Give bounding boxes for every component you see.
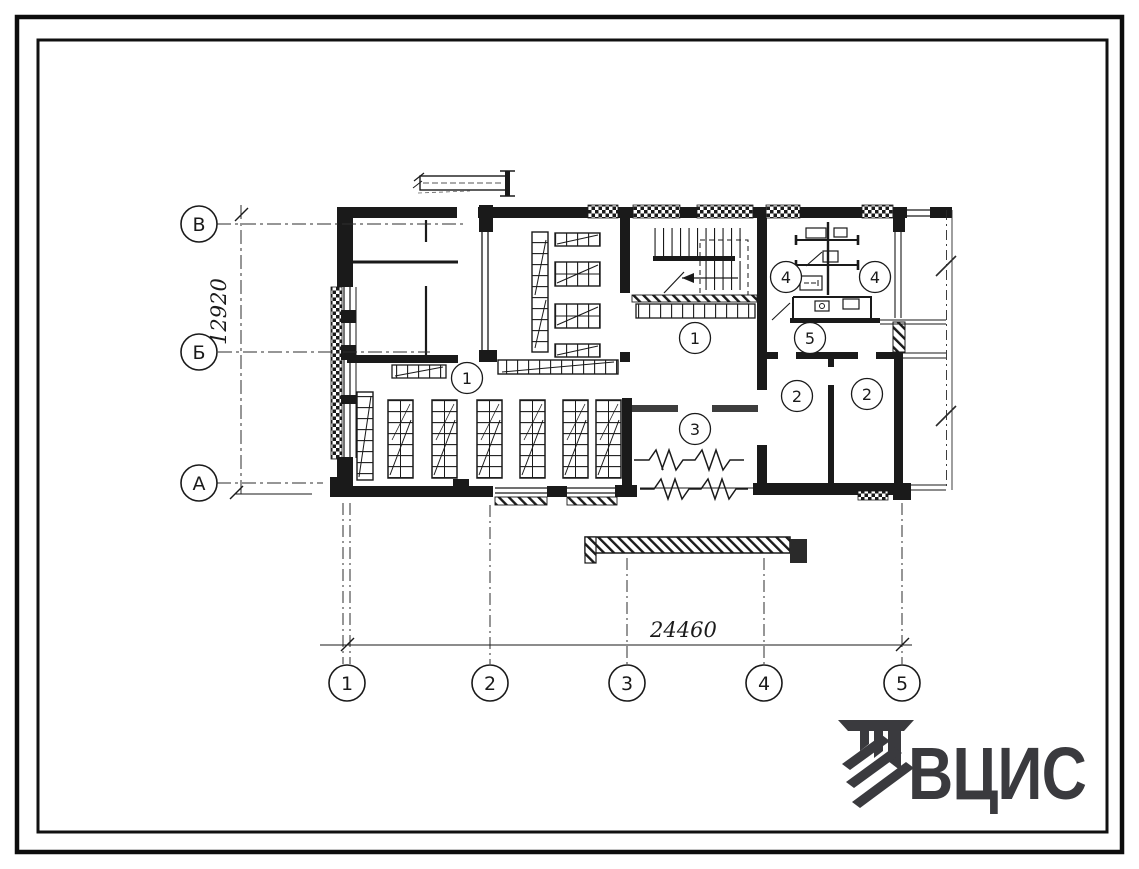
platform-end-block [790,539,807,563]
vestibule-doors [634,450,748,499]
logo-block: ВЦИС [838,720,1086,815]
stair-lower-flight [700,261,748,290]
room-label: 1 [462,369,472,388]
sink-fixture [815,301,829,311]
staircase [632,228,757,318]
sink-fixture [843,299,859,309]
vcis-logo-text: ВЦИС [908,732,1086,815]
drawing-sheet: 12920 24460 В Б А 1 2 3 4 5 1 1 3 4 [0,0,1139,869]
floor-plan-drawing: 12920 24460 В Б А 1 2 3 4 5 1 1 3 4 [0,0,1139,869]
axis-label-v: В [192,214,205,236]
dimension-horizontal-total: 24460 [649,618,717,642]
wc-fixture [806,228,826,238]
axis-label-a: А [193,473,206,495]
axis-label-5: 5 [896,673,908,695]
wc-fixture [834,228,847,237]
axis-label-4: 4 [758,673,770,695]
lobby-bench [636,304,755,318]
room-label: 1 [690,329,700,348]
wc-fixture [823,251,838,262]
stair-upper-flight [648,228,745,258]
axis-label-b: Б [192,342,205,364]
room-label: 3 [690,420,700,439]
break-lines [936,210,956,490]
room-label: 5 [805,329,815,348]
axis-bubbles-vertical: В Б А [181,206,217,501]
room-label: 4 [870,268,880,287]
stair-landing-hatch [632,295,757,302]
axis-bubbles-horizontal: 1 2 3 4 5 [329,665,920,701]
entrance-canopy [413,171,515,196]
vcis-logo-icon [838,720,914,808]
room-label: 2 [792,387,802,406]
room-label: 4 [781,268,791,287]
room-label: 2 [862,385,872,404]
axis-label-3: 3 [621,673,633,695]
axis-label-2: 2 [484,673,496,695]
axis-label-1: 1 [341,673,353,695]
dimension-vertical-total: 12920 [207,278,231,345]
entrance-platform [585,537,807,563]
